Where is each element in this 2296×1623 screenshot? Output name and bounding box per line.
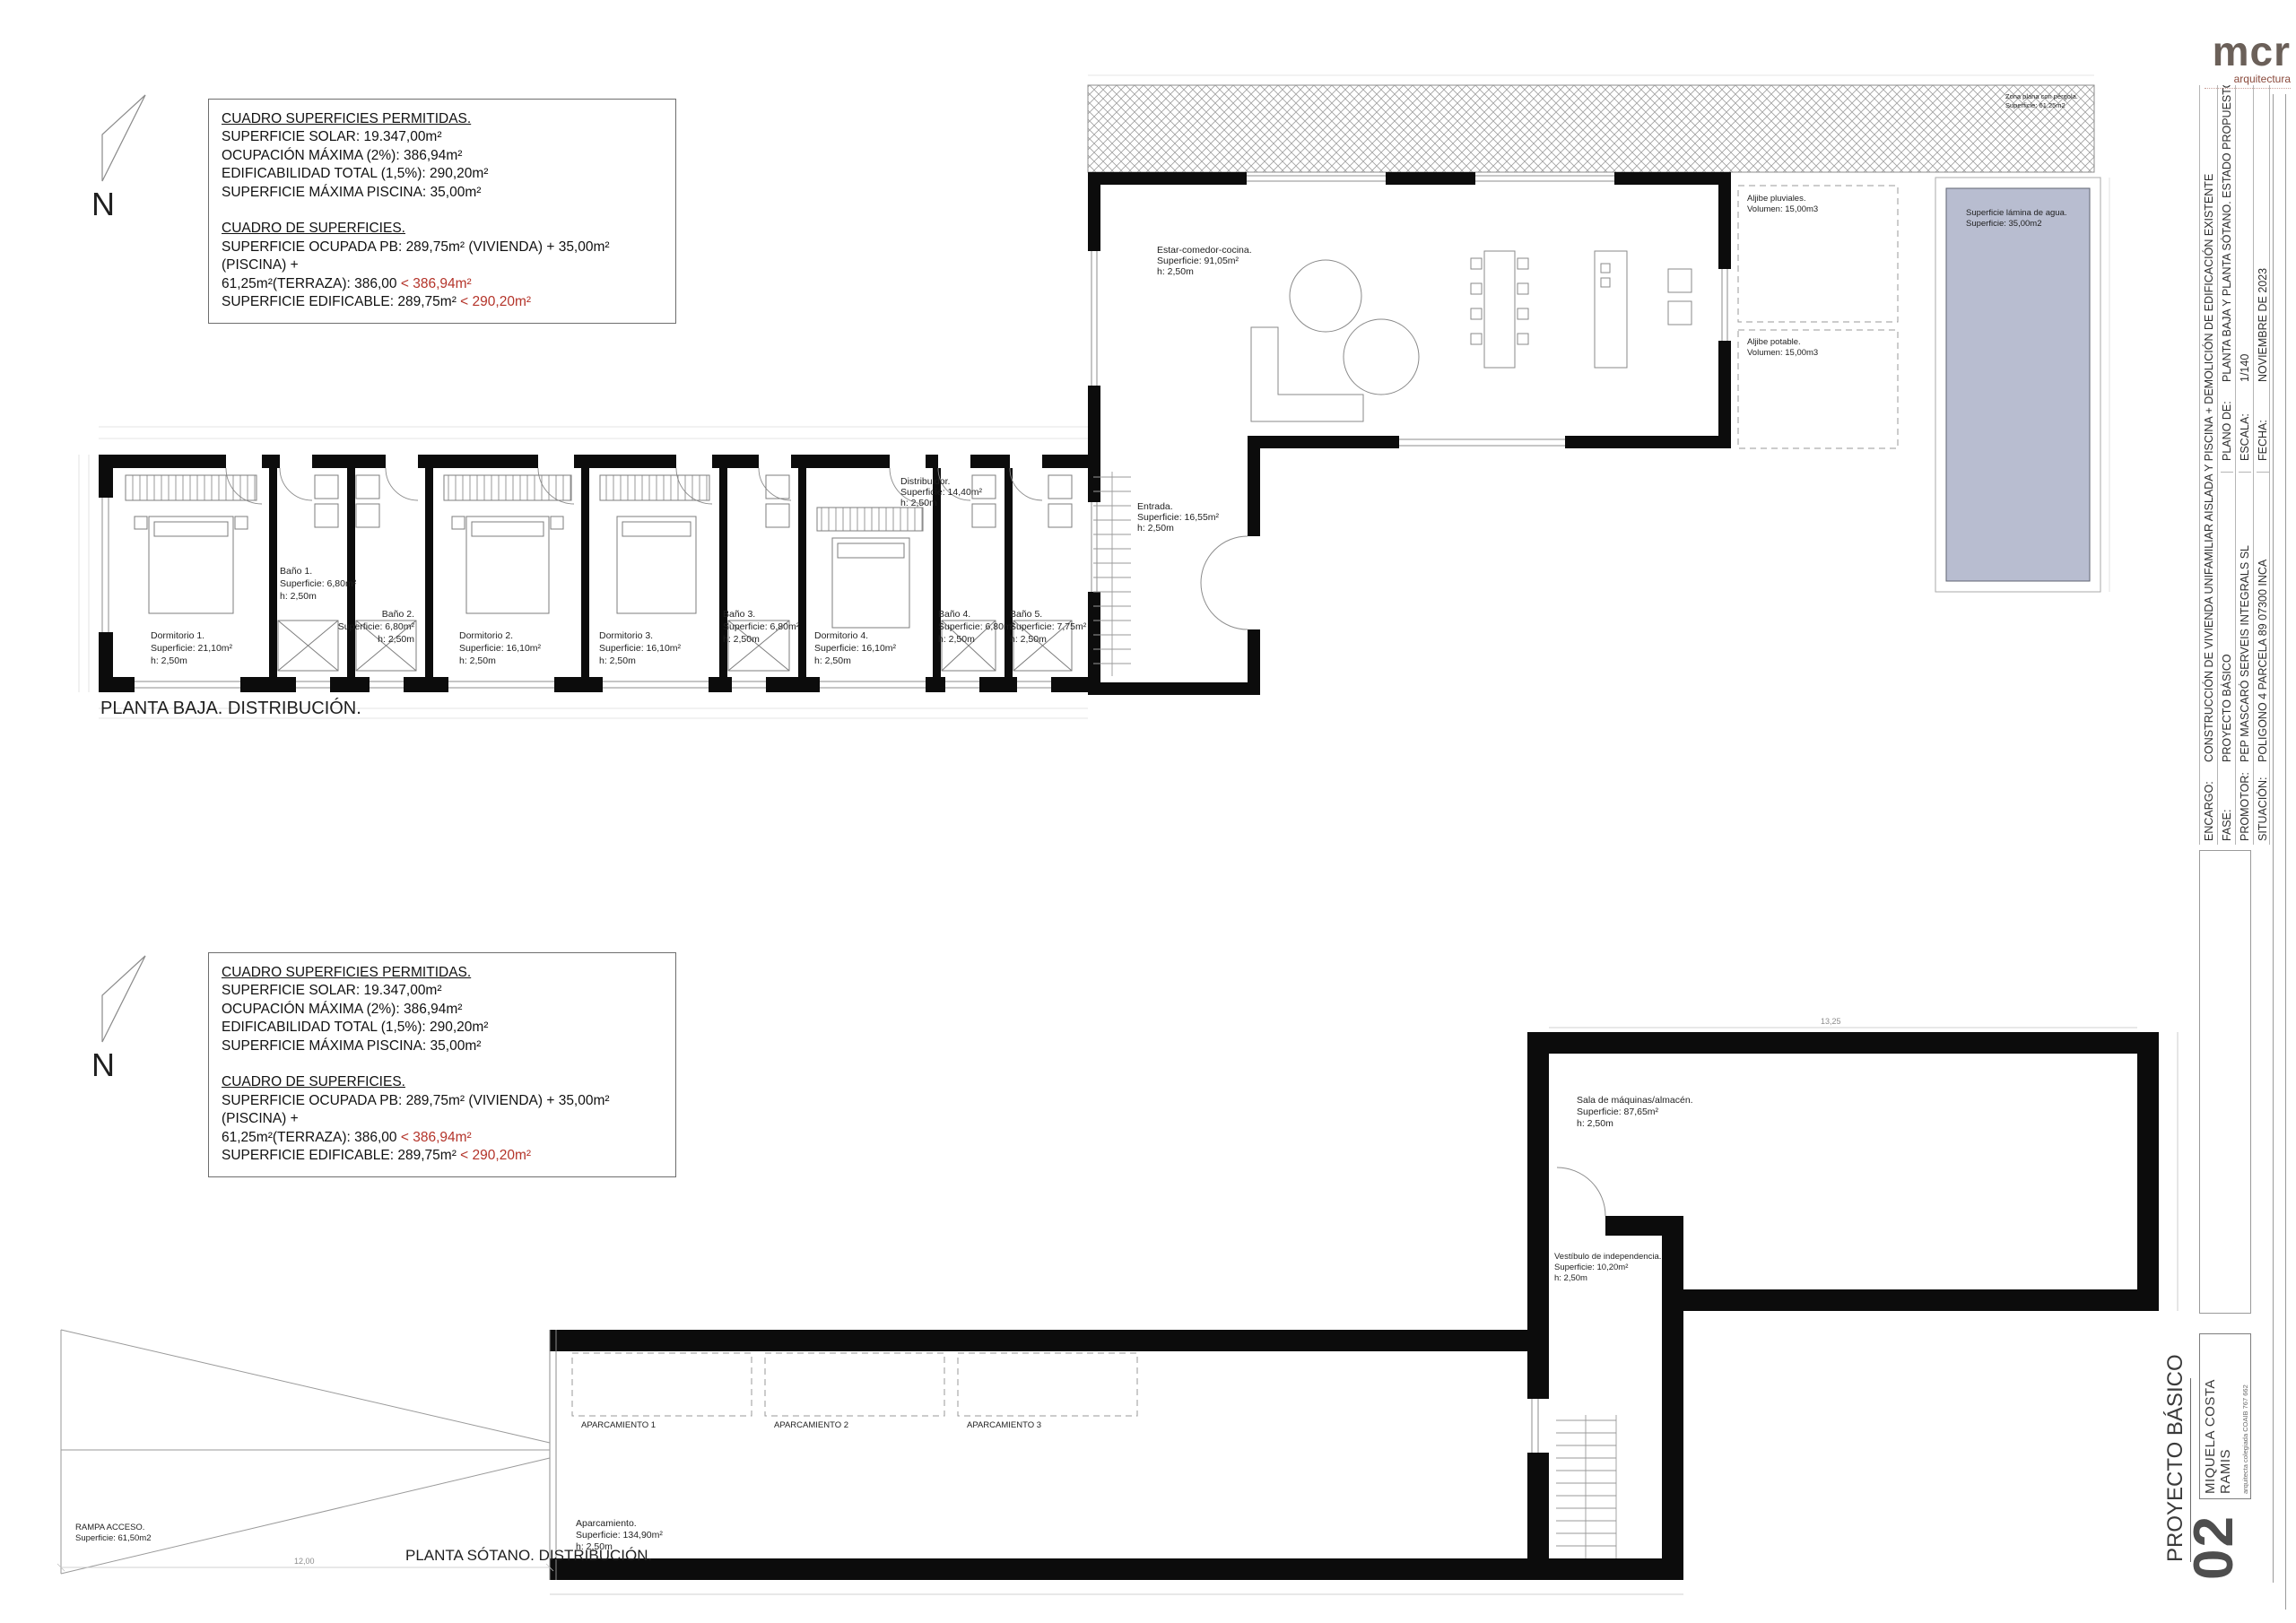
planta-baja-caption: PLANTA BAJA. DISTRIBUCIÓN. [100, 698, 361, 718]
escala-label: ESCALA: [2239, 382, 2251, 464]
svg-text:Superficie: 61,25m2: Superficie: 61,25m2 [2005, 101, 2066, 109]
svg-text:h: 2,50m: h: 2,50m [814, 655, 851, 666]
cuadro-title2: CUADRO DE SUPERFICIES. [222, 220, 663, 238]
fase-label: FASE: [2221, 762, 2233, 845]
plano-value: PLANTA BAJA Y PLANTA SÓTANO. ESTADO PROP… [2221, 85, 2233, 382]
svg-text:Volumen: 15,00m3: Volumen: 15,00m3 [1747, 204, 1818, 214]
logo-mark: mcr [2205, 30, 2291, 72]
bano5-label: Baño 5. [1010, 609, 1042, 620]
dorm3-label: Dormitorio 3. [599, 630, 653, 641]
fase-value: PROYECTO BÁSICO [2221, 473, 2233, 762]
svg-text:h: 2,50m: h: 2,50m [280, 591, 317, 602]
terrace-label: Zona plana con pérgola. [2005, 92, 2078, 100]
cuadro-line: SUPERFICIE MÁXIMA PISCINA: 35,00m² [222, 1037, 663, 1055]
cuadro-title: CUADRO SUPERFICIES PERMITIDAS. [222, 110, 663, 128]
cuadro-line: SUPERFICIE EDIFICABLE: 289,75m² < 290,20… [222, 1147, 663, 1165]
svg-text:Superficie: 6,80m²: Superficie: 6,80m² [338, 621, 415, 632]
estar-label: Estar-comedor-cocina. [1157, 245, 1252, 256]
svg-text:h: 2,50m: h: 2,50m [1554, 1273, 1587, 1283]
cuadro-line: SUPERFICIE EDIFICABLE: 289,75m² < 290,20… [222, 293, 663, 311]
cuadro-line: SUPERFICIE OCUPADA PB: 289,75m² (VIVIEND… [222, 1092, 663, 1129]
svg-text:Superficie: 91,05m²: Superficie: 91,05m² [1157, 256, 1239, 266]
aparcamiento1-label: APARCAMIENTO 1 [581, 1420, 656, 1430]
promotor-value: PEP MASCARÓ SERVEIS INTEGRALS SL [2239, 473, 2251, 762]
bano2-label: Baño 2. [382, 609, 414, 620]
cuadro-line: SUPERFICIE SOLAR: 19.347,00m² [222, 128, 663, 146]
north-arrow-top: N [91, 95, 145, 222]
architect-block: MIQUELA COSTA RAMIS arquitecta colegiada… [2203, 1334, 2248, 1494]
bano4-label: Baño 4. [938, 609, 970, 620]
ramp-dim: 12,00 [294, 1557, 315, 1566]
sotano-walls [550, 1032, 2159, 1580]
terrace-hatch [1088, 85, 2094, 172]
north-label: N [91, 186, 115, 222]
svg-text:Superficie: 61,50m2: Superficie: 61,50m2 [75, 1533, 152, 1543]
distribuidor-label: Distribuidor. [900, 476, 950, 487]
aparcamiento-label: Aparcamiento. [576, 1518, 637, 1529]
svg-text:Superficie: 10,20m²: Superficie: 10,20m² [1554, 1263, 1628, 1272]
cuadro-line: OCUPACIÓN MÁXIMA (2%): 386,94m² [222, 147, 663, 165]
svg-text:Superficie: 35,00m2: Superficie: 35,00m2 [1966, 219, 2042, 229]
living-windows [1091, 176, 1727, 592]
surface-table-top: CUADRO SUPERFICIES PERMITIDAS. SUPERFICI… [208, 99, 676, 324]
cuadro-title2: CUADRO DE SUPERFICIES. [222, 1073, 663, 1091]
architect-credentials: arquitecta colegiada COAIB 767 662 [2241, 1334, 2249, 1494]
vestibulo-label: Vestíbulo de independencia. [1554, 1252, 1661, 1262]
svg-text:Superficie: 16,10m²: Superficie: 16,10m² [814, 643, 897, 654]
dorm4-label: Dormitorio 4. [814, 630, 868, 641]
svg-text:Superficie: 7,75m²: Superficie: 7,75m² [1010, 621, 1087, 632]
surface-table-bottom: CUADRO SUPERFICIES PERMITIDAS. SUPERFICI… [208, 952, 676, 1177]
svg-text:h: 2,50m: h: 2,50m [1010, 634, 1047, 645]
architect-name: MIQUELA COSTA RAMIS [2203, 1334, 2233, 1494]
sheet-border-line [2273, 94, 2274, 1583]
cuadro-line: SUPERFICIE SOLAR: 19.347,00m² [222, 982, 663, 1000]
svg-text:Superficie: 134,90m²: Superficie: 134,90m² [576, 1530, 663, 1541]
cuadro-line: EDIFICABILIDAD TOTAL (1,5%): 290,20m² [222, 1019, 663, 1037]
planta-sotano-labels: Sala de máquinas/almacén. Superficie: 87… [576, 1095, 1693, 1552]
titleblock-row-situacion-fecha: SITUACIÓN: POLIGONO 4 PARCELA 89 07300 I… [2253, 85, 2271, 845]
titleblock-row-fase-plano: FASE: PROYECTO BÁSICO PLANO DE: PLANTA B… [2217, 85, 2235, 845]
titleblock-row-encargo: ENCARGO: CONSTRUCCIÓN DE VIVIENDA UNIFAM… [2199, 85, 2217, 845]
situacion-value: POLIGONO 4 PARCELA 89 07300 INCA [2257, 473, 2269, 762]
cuadro-line: SUPERFICIE OCUPADA PB: 289,75m² (VIVIEND… [222, 239, 663, 275]
north-arrow-bottom: N [91, 956, 145, 1083]
drawing-sheet: { "logo": {"mark": "mcr", "subtitle": "a… [0, 0, 2296, 1623]
firm-logo: mcr arquitectura [2205, 30, 2291, 89]
svg-text:h: 2,50m: h: 2,50m [599, 655, 636, 666]
svg-text:Superficie: 6,80m²: Superficie: 6,80m² [723, 621, 800, 632]
svg-text:Superficie: 6,80m²: Superficie: 6,80m² [280, 578, 357, 589]
svg-text:Superficie: 16,55m²: Superficie: 16,55m² [1137, 512, 1220, 523]
pool-label: Superficie lámina de agua. [1966, 208, 2067, 218]
living-furniture [1251, 251, 1692, 421]
cuadro-title: CUADRO SUPERFICIES PERMITIDAS. [222, 964, 663, 982]
svg-text:h: 2,50m: h: 2,50m [151, 655, 187, 666]
cuadro-line: OCUPACIÓN MÁXIMA (2%): 386,94m² [222, 1001, 663, 1019]
entrance-door-arcs [1201, 536, 1248, 629]
plano-label: PLANO DE: [2221, 382, 2233, 464]
sotano-openings [550, 1167, 1605, 1580]
aljibe-tanks [1738, 186, 1898, 448]
svg-text:h: 2,50m: h: 2,50m [723, 634, 760, 645]
situacion-label: SITUACIÓN: [2257, 762, 2269, 845]
bano3-label: Baño 3. [723, 609, 755, 620]
sotano-stairs [1556, 1415, 1616, 1558]
svg-text:Superficie: 6,80m²: Superficie: 6,80m² [938, 621, 1015, 632]
dorm1-label: Dormitorio 1. [151, 630, 204, 641]
dorm2-label: Dormitorio 2. [459, 630, 513, 641]
svg-text:h: 2,50m: h: 2,50m [1137, 523, 1174, 534]
escala-value: 1/140 [2239, 85, 2251, 382]
svg-text:Superficie: 16,10m²: Superficie: 16,10m² [599, 643, 682, 654]
parking-spots [572, 1353, 1137, 1416]
stamp-box [2199, 850, 2251, 1314]
svg-text:h: 2,50m: h: 2,50m [1577, 1118, 1613, 1129]
pool [1946, 188, 2090, 581]
aljibe2-label: Aljibe potable. [1747, 337, 1801, 347]
aparcamiento3-label: APARCAMIENTO 3 [967, 1420, 1041, 1430]
sheet-number: 02 [2185, 1503, 2248, 1580]
svg-text:Volumen: 15,00m3: Volumen: 15,00m3 [1747, 348, 1818, 358]
sheet-border-line [2285, 94, 2286, 1610]
svg-text:h: 2,50m: h: 2,50m [459, 655, 496, 666]
north-label: N [91, 1046, 115, 1083]
svg-text:h: 2,50m: h: 2,50m [378, 634, 414, 645]
bano1-label: Baño 1. [280, 566, 312, 577]
encargo-label: ENCARGO: [2203, 762, 2215, 845]
svg-text:Superficie: 14,40m²: Superficie: 14,40m² [900, 487, 983, 498]
cuadro-line: 61,25m²(TERRAZA): 386,00 < 386,94m² [222, 1129, 663, 1147]
cuadro-line: EDIFICABILIDAD TOTAL (1,5%): 290,20m² [222, 165, 663, 183]
svg-text:h: 2,50m: h: 2,50m [1157, 266, 1194, 277]
sala-label: Sala de máquinas/almacén. [1577, 1095, 1693, 1106]
titleblock-row-promotor-escala: PROMOTOR: PEP MASCARÓ SERVEIS INTEGRALS … [2235, 85, 2253, 845]
encargo-value: CONSTRUCCIÓN DE VIVIENDA UNIFAMILIAR AIS… [2203, 85, 2215, 762]
sala-dim: 13,25 [1821, 1017, 1841, 1026]
aparcamiento2-label: APARCAMIENTO 2 [774, 1420, 848, 1430]
svg-text:h: 2,50m: h: 2,50m [938, 634, 975, 645]
cuadro-line: 61,25m²(TERRAZA): 386,00 < 386,94m² [222, 275, 663, 293]
planta-sotano-caption: PLANTA SÓTANO. DISTRIBUCIÓN. [405, 1547, 652, 1564]
fecha-value: NOVIEMBRE DE 2023 [2257, 85, 2269, 382]
title-block: ENCARGO: CONSTRUCCIÓN DE VIVIENDA UNIFAM… [2199, 85, 2270, 845]
svg-text:Superficie: 87,65m²: Superficie: 87,65m² [1577, 1107, 1659, 1117]
svg-text:h: 2,50m: h: 2,50m [900, 498, 937, 508]
promotor-label: PROMOTOR: [2239, 762, 2251, 845]
cuadro-line: SUPERFICIE MÁXIMA PISCINA: 35,00m² [222, 184, 663, 202]
svg-text:Superficie: 16,10m²: Superficie: 16,10m² [459, 643, 542, 654]
svg-text:Superficie: 21,10m²: Superficie: 21,10m² [151, 643, 233, 654]
fecha-label: FECHA: [2257, 382, 2269, 464]
rampa-label: RAMPA ACCESO. [75, 1523, 144, 1532]
entrada-label: Entrada. [1137, 501, 1173, 512]
aljibe1-label: Aljibe pluviales. [1747, 194, 1805, 204]
